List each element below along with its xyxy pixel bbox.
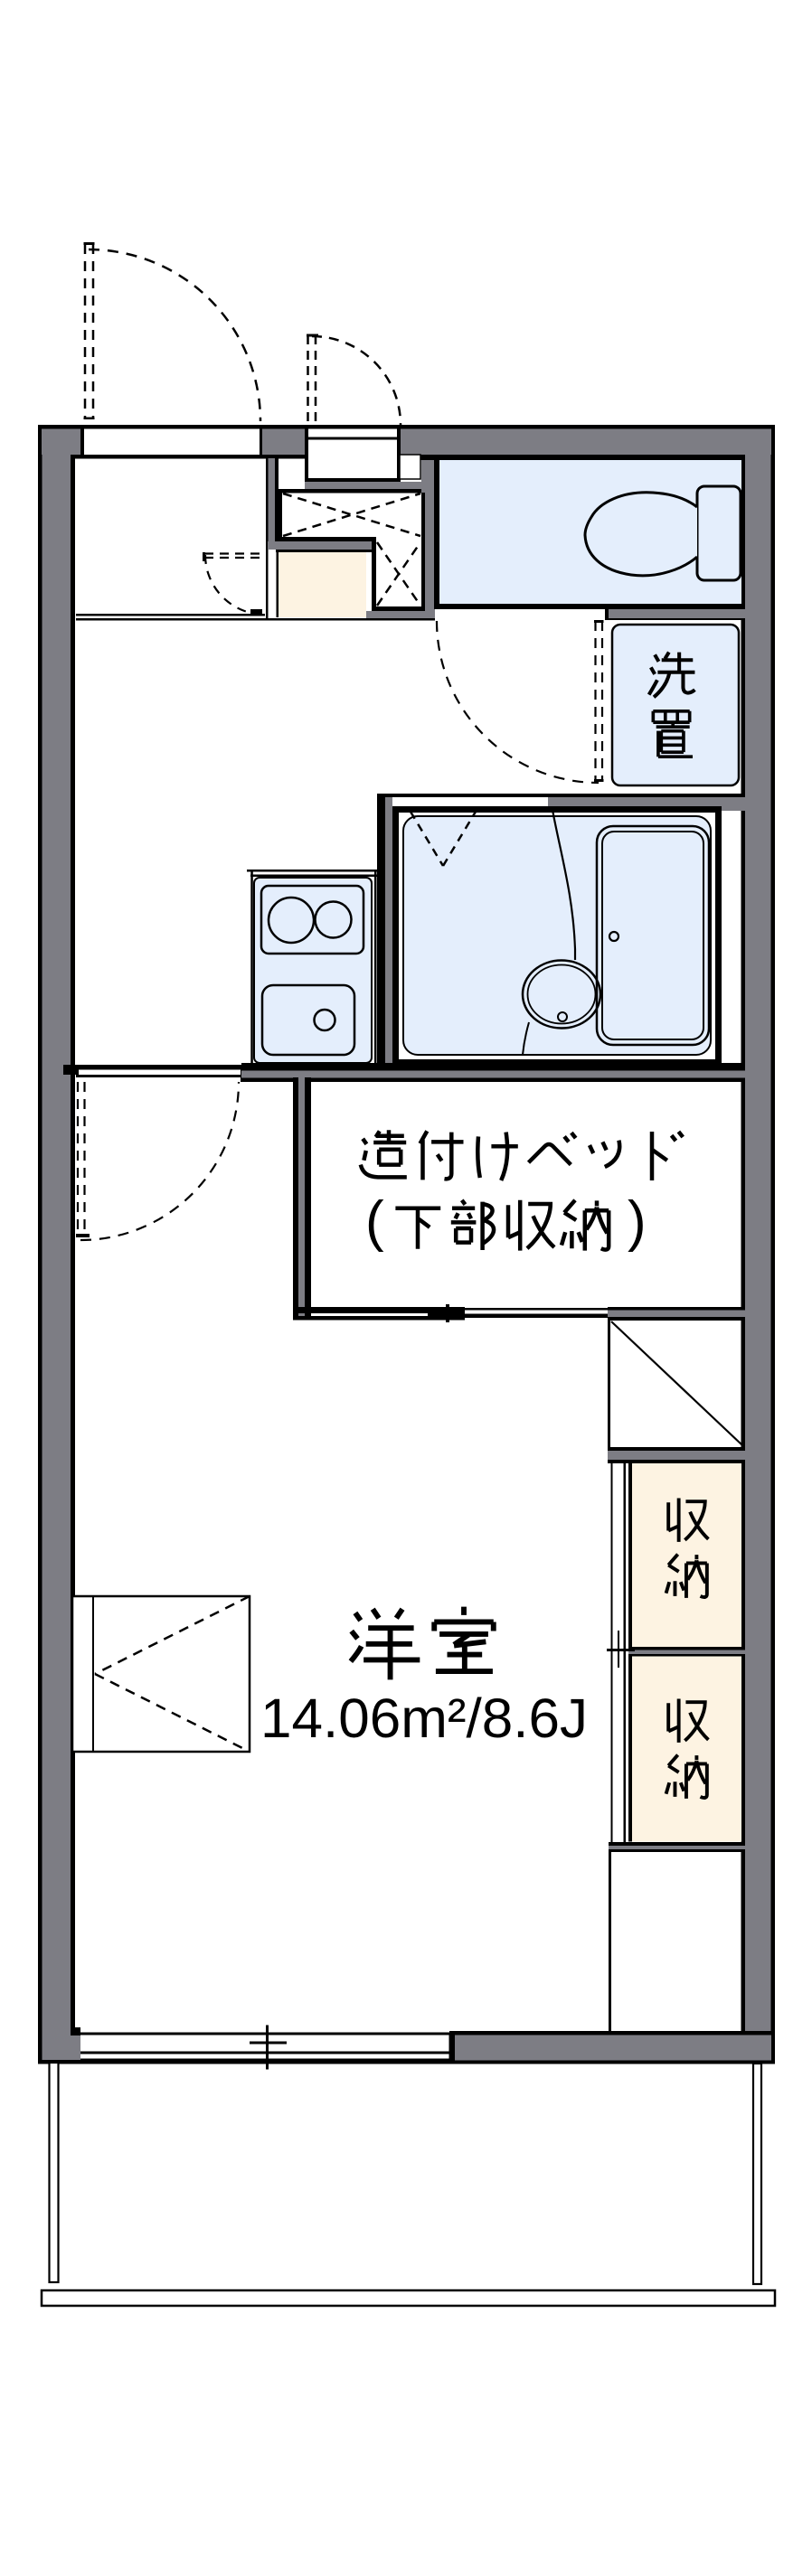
svg-text:14.06m²/8.6J: 14.06m²/8.6J — [260, 1688, 588, 1749]
svg-text:): ) — [628, 1190, 647, 1253]
svg-text:(: ( — [365, 1190, 384, 1253]
